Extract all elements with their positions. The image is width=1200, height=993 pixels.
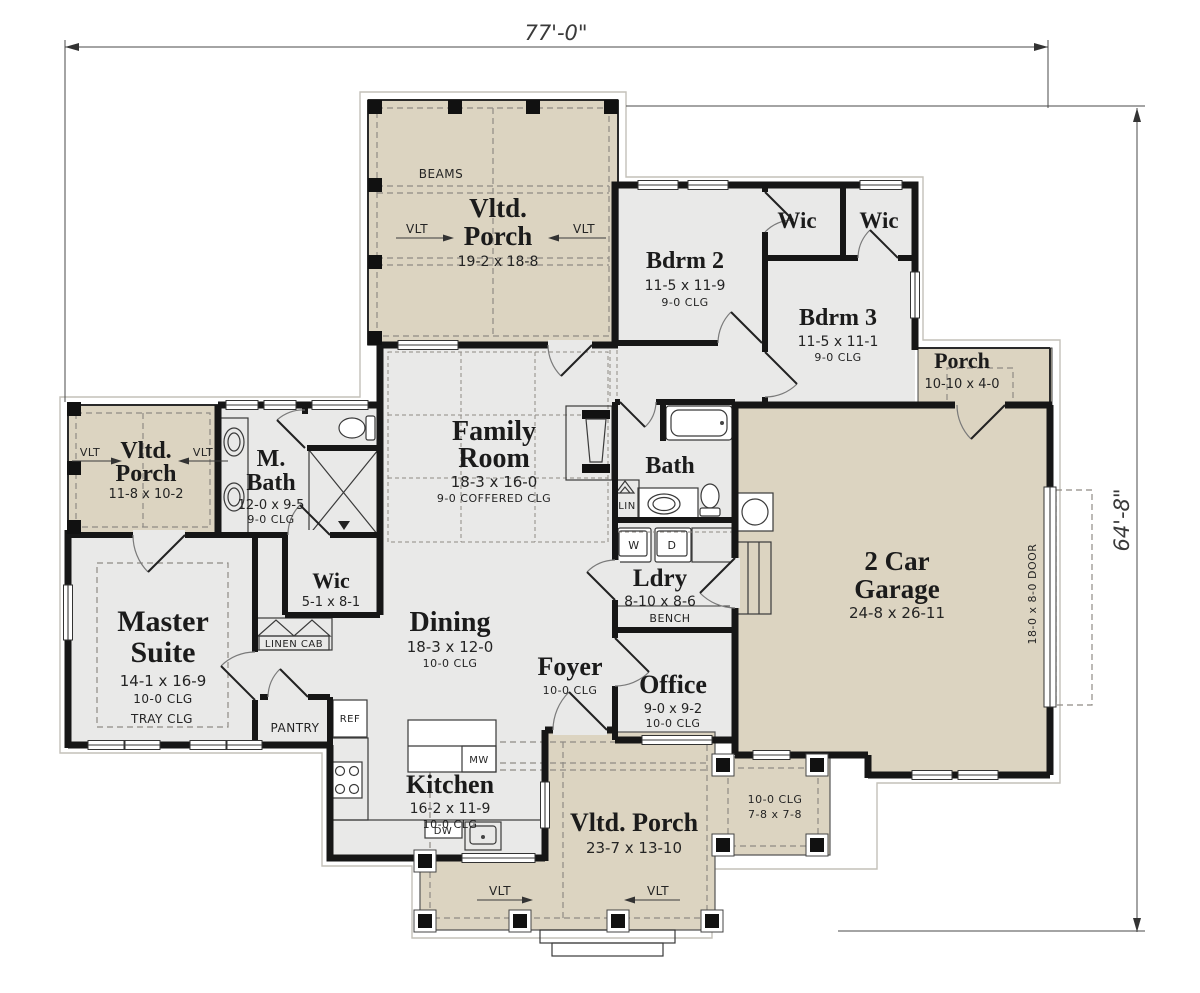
label-wic2: Wic bbox=[859, 208, 898, 233]
clg-family: 9-0 COFFERED CLG bbox=[437, 492, 551, 505]
label-top-porch-2: Porch bbox=[464, 221, 533, 251]
size-bdrm3: 11-5 x 11-1 bbox=[798, 334, 879, 350]
clg-mbath: 9-0 CLG bbox=[247, 513, 294, 526]
label-vlt-tl: VLT bbox=[406, 222, 428, 236]
size-right-porch: 10-10 x 4-0 bbox=[925, 377, 1000, 392]
label-wic3: Wic bbox=[312, 568, 350, 593]
label-vlt-br: VLT bbox=[647, 884, 669, 898]
label-vlt-ll: VLT bbox=[80, 446, 100, 459]
label-mbath-2: Bath bbox=[246, 470, 295, 496]
size-ldry: 8-10 x 8-6 bbox=[624, 594, 696, 610]
size-top-porch: 19-2 x 18-8 bbox=[458, 254, 539, 270]
label-garage-door: 18-0 x 8-0 DOOR bbox=[1026, 544, 1039, 645]
size-small-porch: 7-8 x 7-8 bbox=[748, 808, 802, 821]
size-office: 9-0 x 9-2 bbox=[644, 702, 702, 717]
clg-dining: 10-0 CLG bbox=[423, 657, 478, 670]
label-pantry: PANTRY bbox=[271, 721, 320, 735]
size-left-porch: 11-8 x 10-2 bbox=[109, 487, 184, 502]
bath-vanity bbox=[638, 488, 698, 520]
label-garage-1: 2 Car bbox=[864, 546, 929, 576]
label-left-porch-2: Porch bbox=[116, 461, 177, 487]
clg-small-porch: 10-0 CLG bbox=[748, 793, 803, 806]
label-bdrm3: Bdrm 3 bbox=[799, 305, 877, 331]
dim-width-label: 77'-0" bbox=[524, 21, 587, 45]
label-tray-clg: TRAY CLG bbox=[130, 712, 193, 726]
label-vlt-bl: VLT bbox=[489, 884, 511, 898]
stove bbox=[332, 762, 362, 798]
clg-office: 10-0 CLG bbox=[646, 717, 701, 730]
label-top-porch-1: Vltd. bbox=[469, 193, 527, 223]
label-bath: Bath bbox=[645, 453, 694, 479]
label-vlt-tr: VLT bbox=[573, 222, 595, 236]
label-dryer: D bbox=[668, 539, 677, 552]
label-bench: BENCH bbox=[649, 612, 690, 625]
garage-door bbox=[1044, 487, 1056, 707]
label-dw: DW bbox=[434, 826, 453, 837]
floor-plan-drawing: 77'-0" 64'-8" BEAMS Vltd. Porch 19-2 x 1… bbox=[0, 0, 1200, 993]
floor-plan-page: 77'-0" 64'-8" BEAMS Vltd. Porch 19-2 x 1… bbox=[0, 0, 1200, 993]
label-foyer: Foyer bbox=[538, 652, 603, 681]
label-linen-cab: LINEN CAB bbox=[265, 639, 323, 650]
label-mbath-1: M. bbox=[257, 446, 286, 472]
size-bottom-porch: 23-7 x 13-10 bbox=[586, 839, 682, 857]
label-lin: LIN bbox=[618, 501, 636, 512]
label-dining: Dining bbox=[410, 607, 491, 638]
label-mw: MW bbox=[469, 755, 489, 766]
label-right-porch: Porch bbox=[934, 348, 990, 373]
size-dining: 18-3 x 12-0 bbox=[407, 638, 494, 656]
label-kitchen: Kitchen bbox=[406, 770, 495, 799]
utility-sink bbox=[737, 493, 773, 531]
size-master: 14-1 x 16-9 bbox=[120, 672, 207, 690]
clg-foyer: 10-0 CLG bbox=[543, 684, 598, 697]
bath-toilet bbox=[700, 484, 720, 516]
mbath-toilet bbox=[339, 416, 375, 440]
label-vlt-lr: VLT bbox=[193, 446, 213, 459]
label-wic1: Wic bbox=[777, 208, 816, 233]
dim-height-label: 64'-8" bbox=[1110, 488, 1134, 551]
label-bottom-porch: Vltd. Porch bbox=[570, 808, 699, 837]
size-garage: 24-8 x 26-11 bbox=[849, 604, 945, 622]
size-kitchen: 16-2 x 11-9 bbox=[410, 801, 491, 817]
size-wic3: 5-1 x 8-1 bbox=[302, 595, 360, 610]
label-garage-2: Garage bbox=[854, 574, 939, 604]
label-ldry: Ldry bbox=[633, 565, 688, 592]
label-master-1: Master bbox=[117, 605, 209, 638]
label-family-2: Room bbox=[458, 443, 530, 474]
size-family: 18-3 x 16-0 bbox=[451, 473, 538, 491]
label-office: Office bbox=[639, 670, 707, 699]
porch-steps bbox=[540, 930, 675, 956]
clg-bdrm2: 9-0 CLG bbox=[661, 296, 708, 309]
label-bdrm2: Bdrm 2 bbox=[646, 248, 724, 274]
size-bdrm2: 11-5 x 11-9 bbox=[645, 278, 726, 294]
label-master-2: Suite bbox=[130, 636, 195, 669]
size-mbath: 12-0 x 9-5 bbox=[238, 498, 305, 513]
label-ref: REF bbox=[340, 714, 361, 725]
label-washer: W bbox=[628, 539, 639, 552]
label-beams: BEAMS bbox=[419, 167, 464, 181]
clg-bdrm3: 9-0 CLG bbox=[814, 351, 861, 364]
clg-master: 10-0 CLG bbox=[133, 692, 192, 706]
